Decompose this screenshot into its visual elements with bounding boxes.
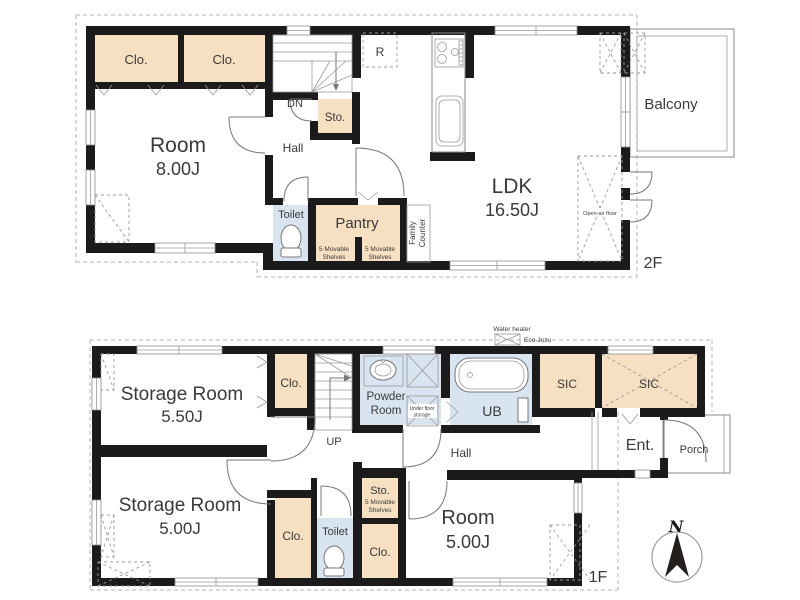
room-2f-size: 8.00J: [156, 159, 200, 179]
ldk-size: 16.50J: [485, 200, 539, 220]
family-counter-label-2: Counter: [418, 218, 427, 247]
powder-room-label-2: Room: [371, 405, 402, 417]
storage-b-name: Storage Room: [119, 495, 242, 516]
sic-left-label: SIC: [557, 377, 577, 391]
water-heater-label: Water heater: [493, 326, 531, 333]
compass-north-arrow-icon: [665, 533, 689, 577]
kitchen-sink-icon: [436, 96, 463, 146]
closet-1f-right-label: Clo.: [369, 545, 390, 559]
pantry-shelf1-line1: 5 Movable: [319, 246, 349, 253]
stairs-up-label: UP: [326, 436, 341, 448]
storage-2f-label: Sto.: [325, 112, 345, 124]
compass-north-label: N: [668, 517, 685, 536]
pantry-label: Pantry: [335, 215, 379, 232]
powder-room-label-1: Powder: [367, 391, 406, 403]
toilet-2f-label: Toilet: [278, 209, 304, 221]
sloped-ceiling-mark: [95, 195, 129, 242]
porch: Porch: [663, 415, 730, 473]
floor-plan-page: Balcony: [0, 0, 800, 600]
stove-icon: [435, 39, 463, 67]
closet-1f-mid-label: Clo.: [282, 529, 303, 543]
stairs-down-arrow: [333, 84, 339, 91]
balcony-label: Balcony: [644, 96, 698, 113]
kitchen-counter: [432, 33, 465, 152]
under-floor-storage-label-1: Under floor: [410, 406, 435, 412]
floor-1f: Porch: [90, 326, 730, 590]
refrigerator-label: R: [376, 45, 385, 59]
storage-b-size: 5.00J: [159, 519, 201, 538]
floor-2f: Balcony: [76, 15, 734, 277]
hall-1f-label: Hall: [451, 446, 472, 460]
toilet-1f-label: Toilet: [322, 526, 348, 538]
closet-1f-top-label: Clo.: [280, 376, 301, 390]
pantry-shelf2-line2: Shelves: [368, 254, 392, 261]
open-air-floor-label: Open-air floor: [583, 211, 617, 217]
storage-1f-label: Sto.: [370, 485, 390, 497]
floor-2f-label: 2F: [644, 255, 663, 272]
open-air-floor: Open-air floor: [578, 156, 622, 261]
pantry-shelf2-line1: 5 Movable: [365, 246, 395, 253]
room-2f-name: Room: [150, 134, 206, 157]
storage-1f-shelf-1: 5 Movable: [365, 499, 395, 506]
sic-right-label: SIC: [639, 377, 659, 391]
stairs-1f: [315, 354, 352, 430]
water-heater-model: Eco-Jozu: [524, 337, 551, 344]
stairs-dn-label: DN: [287, 98, 303, 110]
floor-1f-label: 1F: [589, 569, 608, 586]
ldk-name: LDK: [492, 175, 533, 198]
compass: N: [652, 517, 702, 582]
toilet-1f-icon: [324, 546, 344, 576]
room-1f-size: 5.00J: [446, 532, 490, 552]
closet-chevrons-1f: [257, 356, 267, 408]
balcony: Balcony: [630, 29, 734, 157]
stairs-2f: [273, 35, 352, 92]
family-counter: Family Counter: [407, 205, 430, 262]
unit-bath-label: UB: [482, 403, 501, 419]
closet-2f-right-label: Clo.: [212, 52, 235, 67]
under-floor-storage-label-2: storage: [414, 413, 431, 419]
storage-a-name: Storage Room: [121, 384, 244, 405]
water-heater: Water heater Eco-Jozu: [493, 326, 551, 345]
family-counter-label-1: Family: [408, 221, 417, 245]
room-1f-name: Room: [441, 507, 494, 529]
hall-2f-label: Hall: [283, 141, 304, 155]
floor-plan-drawing: Balcony: [0, 0, 800, 600]
refrigerator-space: R: [363, 33, 397, 67]
toilet-2f-icon: [281, 225, 301, 257]
pantry-door-chevron: [358, 192, 378, 200]
storage-1f-shelf-2: Shelves: [368, 507, 392, 514]
closet-2f-left-label: Clo.: [124, 52, 147, 67]
storage-a-size: 5.50J: [161, 407, 203, 426]
pantry-shelf1-line2: Shelves: [322, 254, 346, 261]
entrance-label: Ent.: [626, 437, 654, 454]
